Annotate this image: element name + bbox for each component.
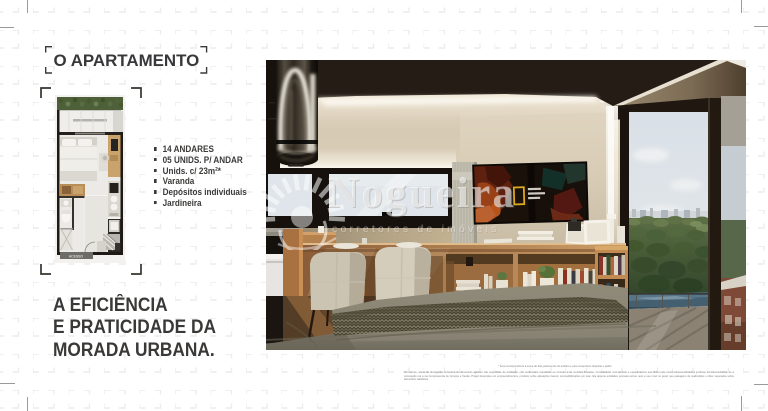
- svg-text:Nogueira: Nogueira: [328, 170, 514, 217]
- svg-text:ACESSO: ACESSO: [69, 254, 83, 258]
- svg-text:corretores de imóveis: corretores de imóveis: [332, 223, 500, 235]
